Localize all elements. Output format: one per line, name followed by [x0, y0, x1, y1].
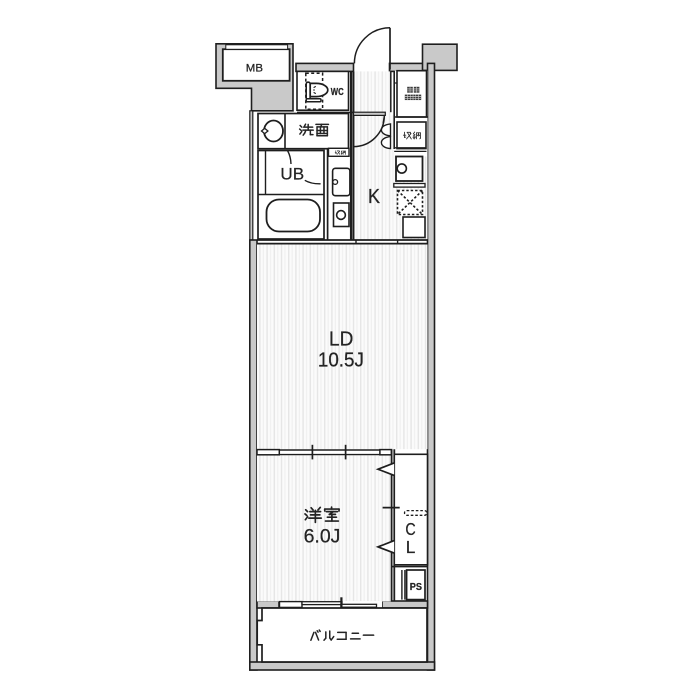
svg-text:L: L	[406, 537, 416, 557]
svg-text:WC: WC	[331, 87, 344, 98]
svg-text:C: C	[405, 519, 415, 539]
svg-text:10.5J: 10.5J	[318, 350, 364, 372]
svg-text:UB: UB	[280, 164, 304, 183]
svg-text:K: K	[368, 186, 381, 208]
svg-text:LD: LD	[329, 328, 353, 351]
svg-text:MB: MB	[246, 63, 263, 75]
svg-text:PS: PS	[410, 582, 422, 593]
svg-text:6.0J: 6.0J	[304, 525, 341, 547]
